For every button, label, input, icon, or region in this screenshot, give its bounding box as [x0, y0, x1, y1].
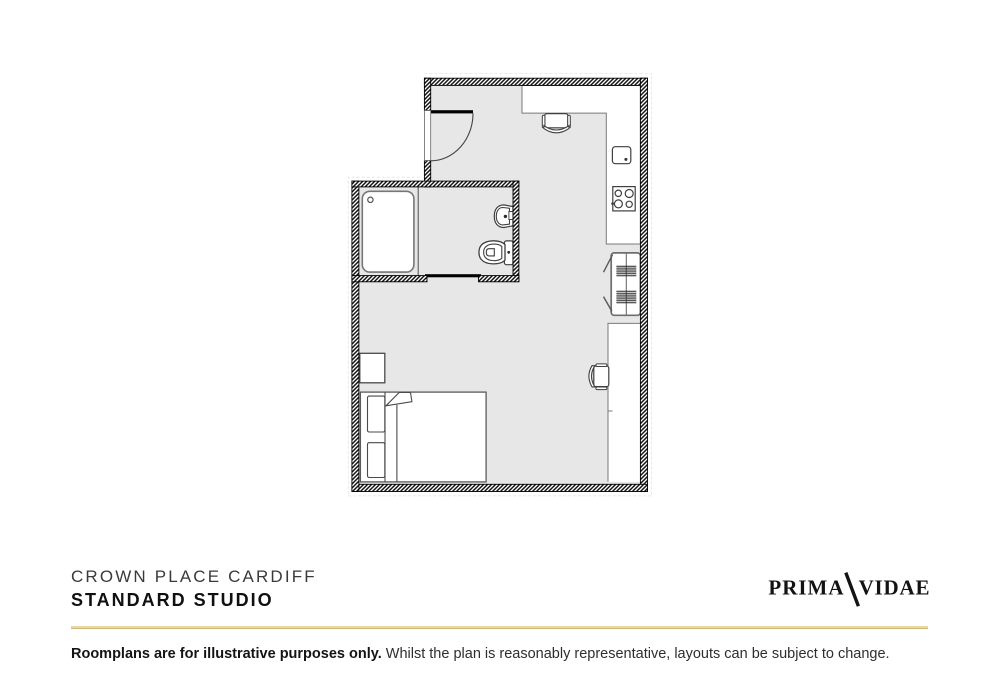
svg-text:PRIMA: PRIMA [768, 576, 844, 600]
svg-text:VIDAE: VIDAE [859, 576, 931, 600]
